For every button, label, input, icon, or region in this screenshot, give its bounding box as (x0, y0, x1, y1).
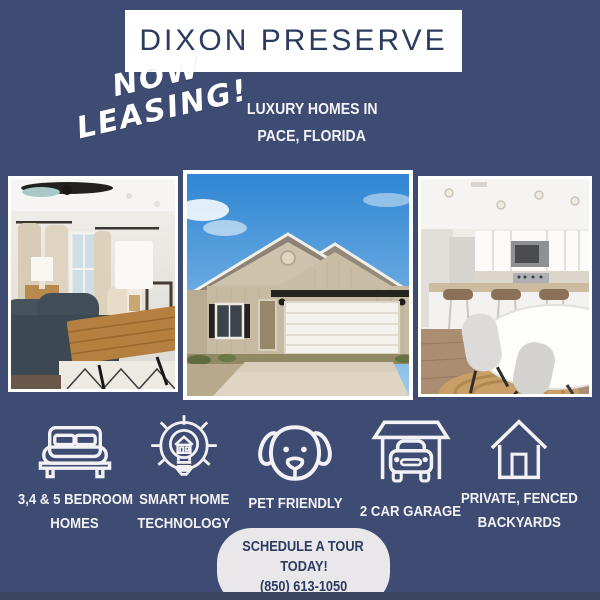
dog-icon (255, 420, 335, 486)
cta-line1: SCHEDULE A TOUR (243, 537, 364, 557)
feature-pet-friendly: PET FRIENDLY (235, 408, 355, 540)
subtitle-line2: PACE, FLORIDA (258, 123, 366, 150)
cta-line2: TODAY! (280, 557, 328, 577)
feature-backyards-label: PRIVATE, FENCED BACKYARDS (450, 487, 588, 535)
schedule-tour-button[interactable]: SCHEDULE A TOUR TODAY! (850) 613-1050 (217, 528, 390, 600)
kitchen-dining-illustration (421, 179, 589, 394)
flyer-canvas: DIXON PRESERVE NOW LEASING! LUXURY HOMES… (0, 0, 600, 600)
garage-car-icon (371, 417, 451, 488)
living-room-illustration (11, 179, 175, 389)
bottom-shadow-strip (0, 592, 600, 600)
feature-smart-home-label: SMART HOME TECHNOLOGY (124, 488, 244, 536)
subtitle-line1: LUXURY HOMES IN (247, 96, 378, 123)
bed-icon (37, 426, 113, 480)
living-room-photo (8, 176, 178, 392)
house-icon (484, 414, 554, 482)
feature-smart-home: SMART HOME TECHNOLOGY (124, 408, 244, 536)
location-subtitle: LUXURY HOMES IN PACE, FLORIDA (228, 96, 396, 150)
house-exterior-photo (183, 170, 413, 400)
smart-home-bulb-icon (148, 412, 220, 484)
feature-backyards: PRIVATE, FENCED BACKYARDS (450, 408, 588, 535)
kitchen-dining-photo (418, 176, 592, 397)
house-exterior-illustration (187, 174, 409, 396)
